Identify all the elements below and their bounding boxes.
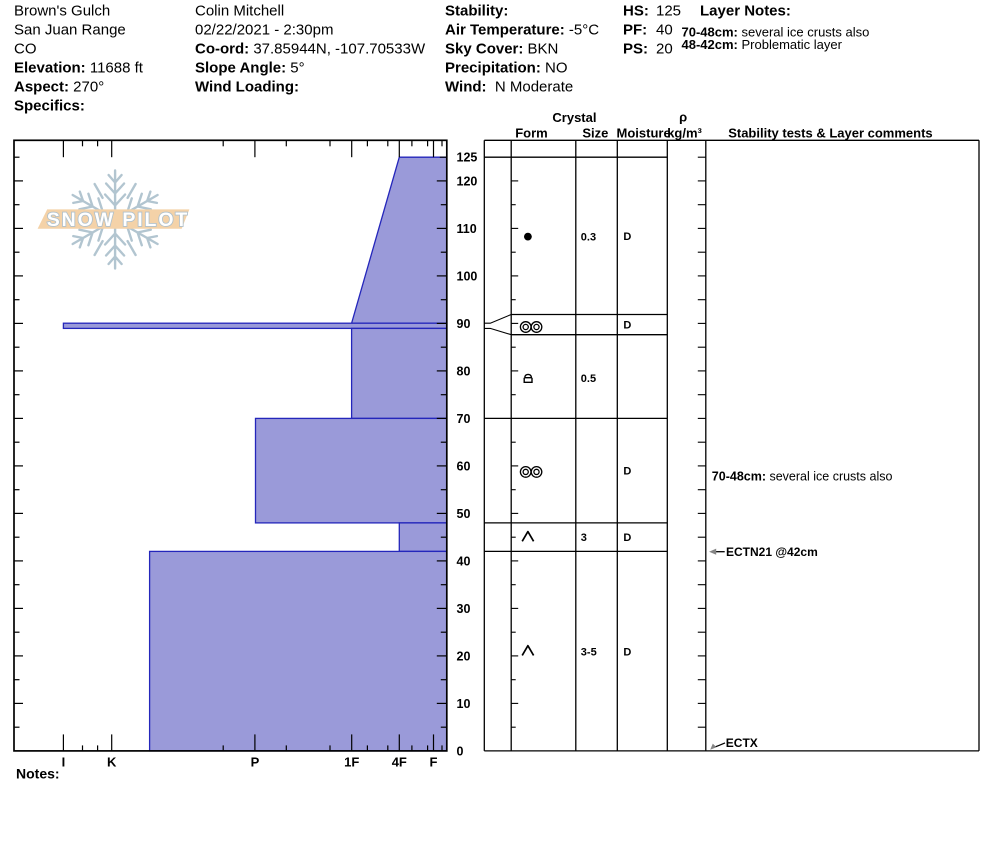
- svg-text:4F: 4F: [392, 755, 407, 770]
- svg-text:D: D: [623, 466, 631, 478]
- svg-text:D: D: [623, 231, 631, 243]
- svg-text:Layer Notes:: Layer Notes:: [700, 3, 791, 20]
- svg-text:30: 30: [457, 602, 471, 616]
- svg-text:50: 50: [457, 507, 471, 521]
- svg-text:Colin Mitchell: Colin Mitchell: [195, 3, 284, 20]
- svg-text:110: 110: [457, 222, 477, 236]
- svg-text:Specifics:: Specifics:: [14, 98, 85, 115]
- svg-text:0.5: 0.5: [581, 373, 596, 385]
- svg-text:kg/m³: kg/m³: [667, 125, 702, 140]
- svg-text:0.3: 0.3: [581, 232, 596, 244]
- svg-text:Aspect: 270°: Aspect: 270°: [14, 79, 104, 96]
- svg-text:HS:: HS:: [623, 3, 649, 20]
- svg-text:F: F: [430, 755, 438, 770]
- svg-text:20: 20: [457, 649, 471, 663]
- svg-text:90: 90: [457, 317, 471, 331]
- svg-text:PS:: PS:: [623, 41, 648, 58]
- svg-text:Sky Cover: BKN: Sky Cover: BKN: [445, 41, 558, 58]
- svg-text:P: P: [251, 755, 260, 770]
- svg-text:Air Temperature: -5°C: Air Temperature: -5°C: [445, 22, 599, 39]
- svg-text:3: 3: [581, 532, 587, 544]
- svg-text:Moisture: Moisture: [617, 125, 671, 140]
- svg-text:ECTX: ECTX: [726, 736, 758, 750]
- svg-text:125: 125: [656, 3, 681, 20]
- svg-text:100: 100: [457, 269, 478, 283]
- svg-text:ρ: ρ: [679, 109, 687, 124]
- svg-text:D: D: [623, 532, 631, 544]
- svg-text:PF:: PF:: [623, 22, 647, 39]
- svg-text:Size: Size: [582, 125, 608, 140]
- svg-text:20: 20: [656, 41, 673, 58]
- svg-text:ECTN21 @42cm: ECTN21 @42cm: [726, 545, 818, 559]
- svg-text:70-48cm: several ice crusts al: 70-48cm: several ice crusts also: [712, 470, 893, 484]
- svg-text:Crystal: Crystal: [552, 110, 596, 125]
- svg-text:Wind: N Moderate: Wind: N Moderate: [445, 79, 573, 96]
- svg-text:Stability tests & Layer commen: Stability tests & Layer comments: [728, 125, 932, 140]
- svg-text:D: D: [623, 646, 631, 658]
- svg-text:Brown's Gulch: Brown's Gulch: [14, 3, 110, 20]
- svg-text:K: K: [107, 755, 117, 770]
- svg-text:40: 40: [656, 22, 673, 39]
- svg-text:60: 60: [457, 459, 471, 473]
- svg-text:Elevation: 11688 ft: Elevation: 11688 ft: [14, 60, 144, 77]
- svg-text:48-42cm: Problematic layer: 48-42cm: Problematic layer: [682, 37, 843, 52]
- svg-text:Wind Loading:: Wind Loading:: [195, 79, 299, 96]
- svg-text:Co-ord: 37.85944N, -107.70533W: Co-ord: 37.85944N, -107.70533W: [195, 41, 426, 58]
- svg-text:40: 40: [457, 554, 471, 568]
- svg-text:02/22/2021 - 2:30pm: 02/22/2021 - 2:30pm: [195, 22, 333, 39]
- svg-text:Slope Angle: 5°: Slope Angle: 5°: [195, 60, 305, 77]
- svg-text:Precipitation: NO: Precipitation: NO: [445, 60, 568, 77]
- svg-text:70: 70: [457, 412, 471, 426]
- svg-text:I: I: [62, 755, 66, 770]
- svg-text:1F: 1F: [344, 755, 359, 770]
- svg-text:SNOW PILOT: SNOW PILOT: [47, 209, 190, 231]
- svg-text:10: 10: [457, 697, 471, 711]
- svg-text:120: 120: [457, 174, 478, 188]
- svg-text:CO: CO: [14, 41, 37, 58]
- svg-text:Stability:: Stability:: [445, 3, 508, 20]
- svg-text:80: 80: [457, 364, 471, 378]
- svg-text:125: 125: [457, 151, 478, 165]
- svg-text:3-5: 3-5: [581, 646, 597, 658]
- svg-text:Notes:: Notes:: [16, 766, 60, 782]
- svg-text:San Juan Range: San Juan Range: [14, 22, 126, 39]
- svg-text:D: D: [623, 320, 631, 332]
- svg-text:Form: Form: [515, 125, 548, 140]
- svg-text:0: 0: [457, 744, 464, 758]
